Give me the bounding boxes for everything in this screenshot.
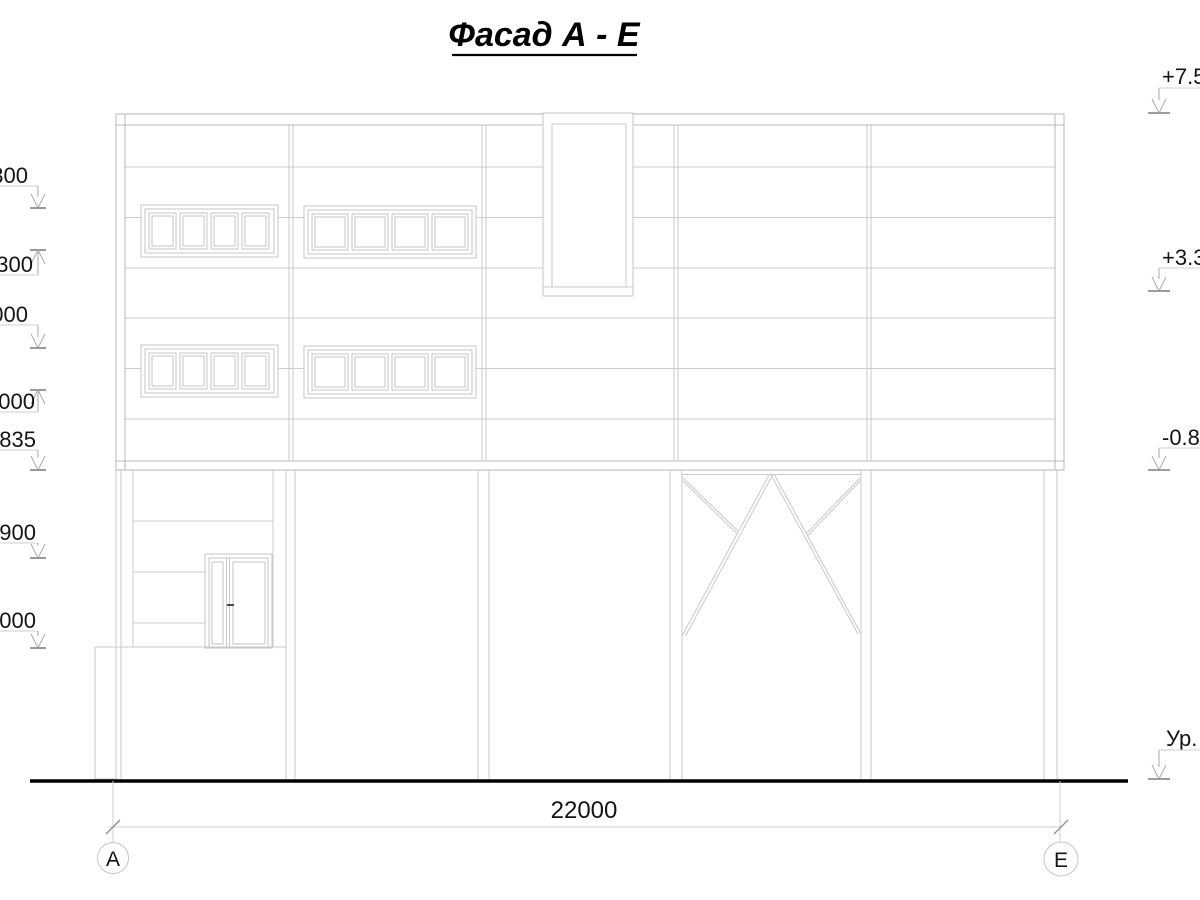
elevation-markers-left: 300 .300 000 .000 <box>0 163 46 648</box>
svg-text:.300: .300 <box>0 252 33 277</box>
drawing-title: Фасад А - Е <box>448 16 641 55</box>
elevation-marker-right-1: +7.50 <box>1148 64 1200 113</box>
elevation-marker-left-7: .000 <box>0 608 46 648</box>
elevation-marker-left-6: .900 <box>0 520 46 558</box>
axis-label-e: Е <box>1054 849 1068 872</box>
elevation-markers-right: +7.50 +3.30 -0.83 Ур. <box>1148 64 1200 779</box>
elevation-marker-left-5: .835 <box>0 427 46 470</box>
svg-text:.900: .900 <box>0 520 36 545</box>
facade-drawing-page: Фасад А - Е <box>0 0 1200 900</box>
svg-text:Ур.: Ур. <box>1166 726 1197 751</box>
window-strip-4 <box>304 346 476 398</box>
svg-text:000: 000 <box>0 302 28 327</box>
roof-tower <box>543 113 633 296</box>
lower-storey <box>95 470 1057 780</box>
page-title: Фасад А - Е <box>448 16 641 54</box>
svg-text:.835: .835 <box>0 427 36 452</box>
elevation-marker-left-4: .000 <box>0 389 46 414</box>
svg-text:+7.50: +7.50 <box>1162 64 1200 89</box>
elevation-marker-left-2: .300 <box>0 250 46 277</box>
axis-bubble-a: А <box>98 843 129 874</box>
facade-elevation-drawing: Фасад А - Е <box>0 0 1200 900</box>
elevation-marker-right-3: -0.83 <box>1148 425 1200 470</box>
elevation-marker-right-ground: Ур. <box>1148 726 1200 779</box>
entrance-door <box>205 554 272 648</box>
dimension-and-axes: 22000 А Е <box>98 781 1079 876</box>
window-strip-2 <box>304 206 476 258</box>
svg-text:.000: .000 <box>0 389 35 414</box>
overall-dimension-label: 22000 <box>551 797 618 824</box>
svg-text:-0.83: -0.83 <box>1162 425 1200 450</box>
svg-text:300: 300 <box>0 163 28 188</box>
axis-label-a: А <box>106 848 120 871</box>
window-strip-3 <box>141 345 278 397</box>
entrance-porch <box>95 647 286 779</box>
elevation-marker-left-1: 300 <box>0 163 46 208</box>
upper-block <box>116 113 1064 470</box>
elevation-marker-right-2: +3.30 <box>1148 245 1200 291</box>
elevation-marker-left-3: 000 <box>0 302 46 348</box>
svg-text:.000: .000 <box>0 608 36 633</box>
window-strip-1 <box>141 205 278 257</box>
braced-bay <box>682 475 861 637</box>
axis-bubble-e: Е <box>1044 842 1078 876</box>
svg-text:+3.30: +3.30 <box>1162 245 1200 270</box>
